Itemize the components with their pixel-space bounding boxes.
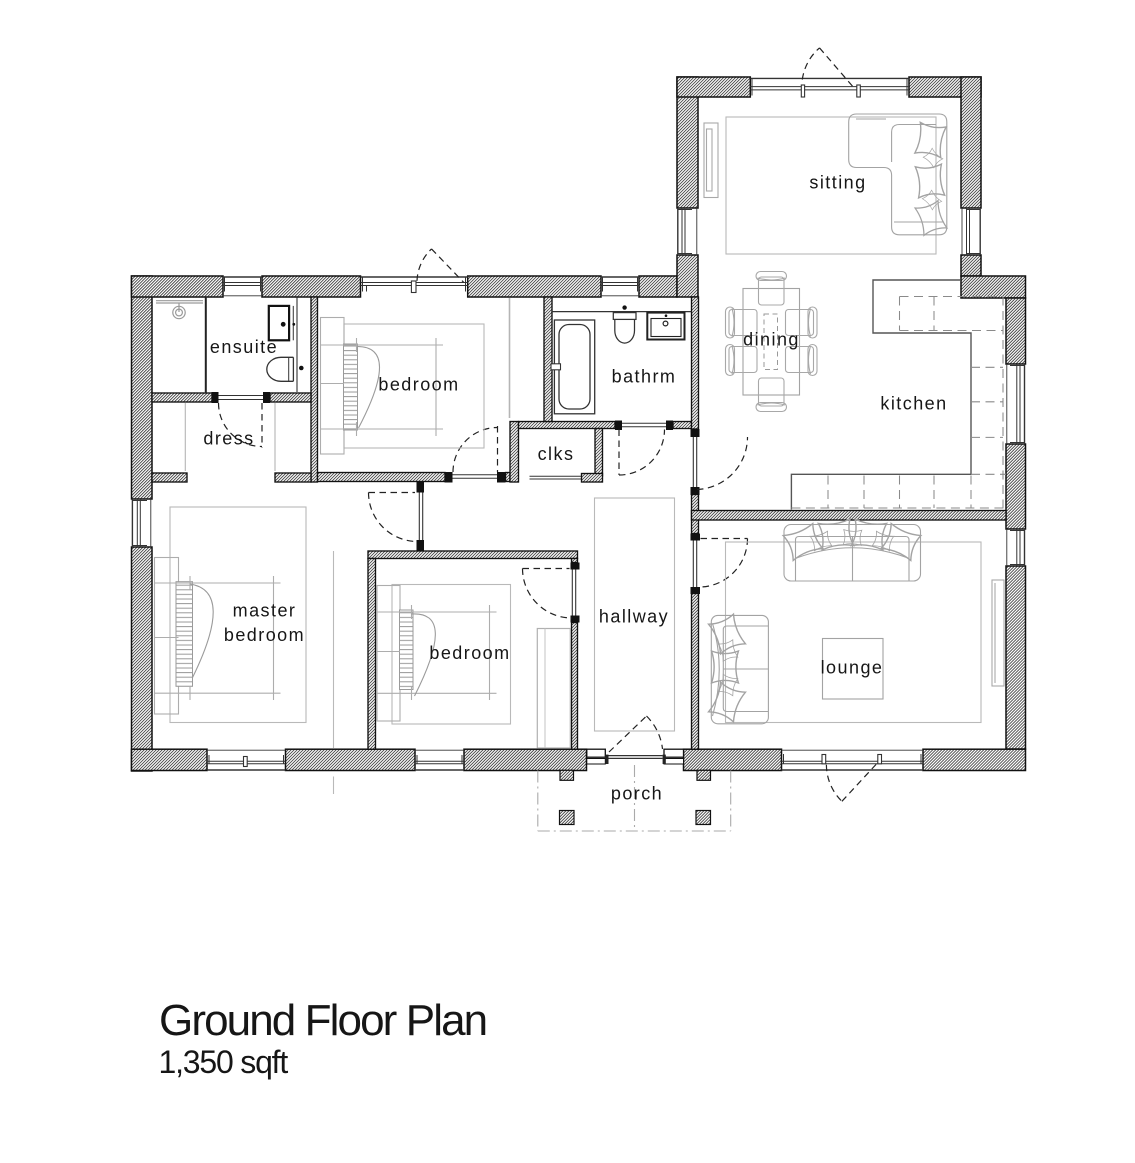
- svg-text:dining: dining: [743, 330, 800, 350]
- svg-text:sitting: sitting: [809, 173, 866, 193]
- svg-text:bedroom: bedroom: [429, 643, 510, 663]
- svg-text:clks: clks: [538, 444, 575, 464]
- svg-text:dress: dress: [203, 429, 254, 449]
- svg-text:master: master: [233, 601, 297, 621]
- svg-text:1,350 sqft: 1,350 sqft: [159, 1044, 289, 1080]
- svg-text:ensuite: ensuite: [210, 337, 278, 357]
- svg-text:bedroom: bedroom: [378, 375, 459, 395]
- svg-text:Ground Floor Plan: Ground Floor Plan: [159, 996, 486, 1045]
- svg-text:bathrm: bathrm: [612, 367, 677, 387]
- svg-text:hallway: hallway: [599, 607, 669, 627]
- svg-text:lounge: lounge: [821, 658, 884, 678]
- svg-text:porch: porch: [611, 784, 663, 804]
- svg-text:bedroom: bedroom: [224, 625, 305, 645]
- svg-text:kitchen: kitchen: [880, 394, 947, 414]
